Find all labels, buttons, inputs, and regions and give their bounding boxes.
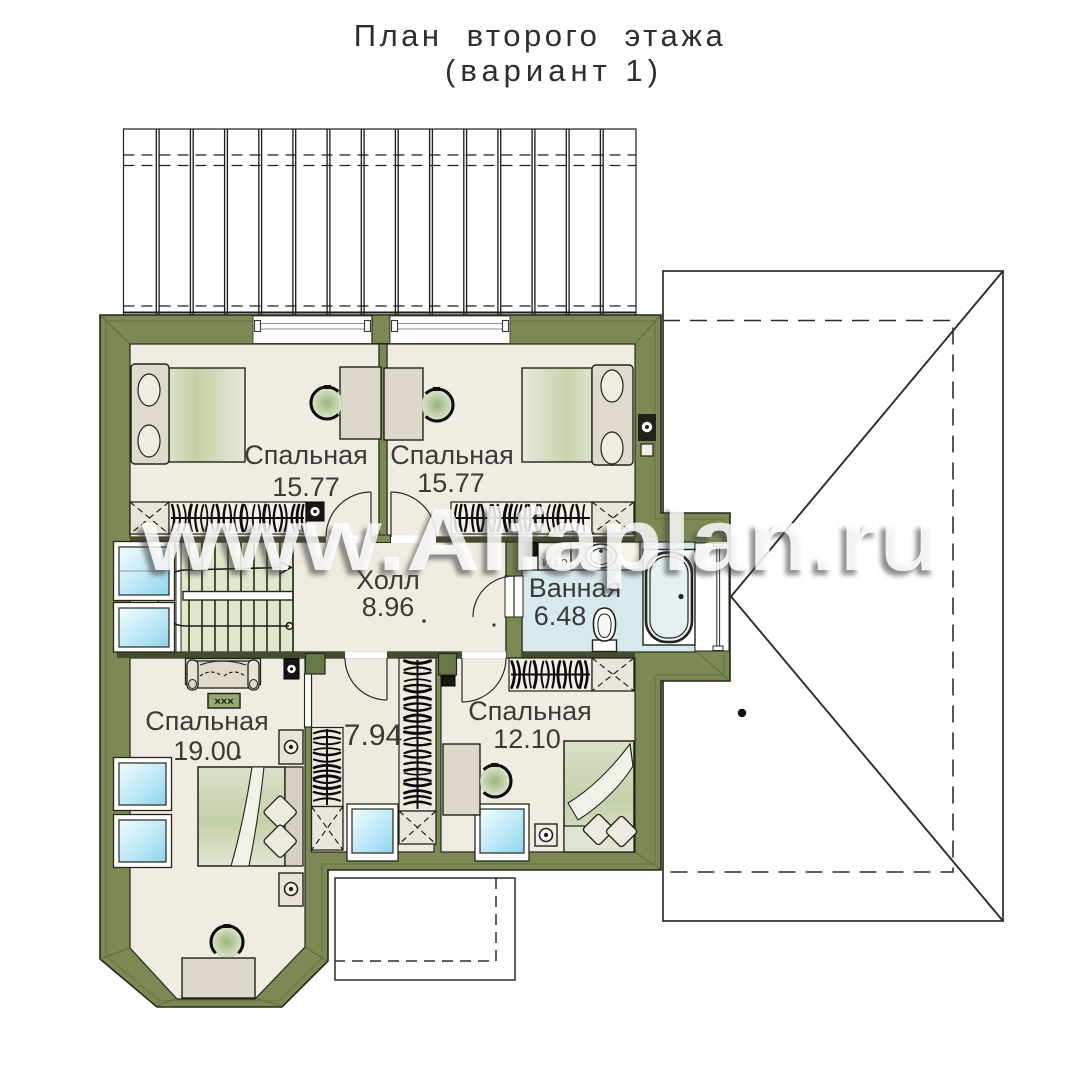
- svg-text:(вариант 1): (вариант 1): [445, 53, 663, 88]
- svg-text:19.00: 19.00: [173, 736, 241, 766]
- svg-text:Спальная: Спальная: [390, 440, 514, 470]
- svg-text:План второго этажа: План второго этажа: [354, 18, 726, 53]
- svg-text:7.94: 7.94: [344, 719, 402, 752]
- svg-text:Спальная: Спальная: [468, 696, 592, 726]
- svg-text:8.96: 8.96: [362, 592, 415, 622]
- svg-text:12.10: 12.10: [493, 724, 561, 754]
- svg-text:Спальная: Спальная: [244, 440, 368, 470]
- svg-text:www.Alfaplan.ru: www.Alfaplan.ru: [141, 490, 942, 589]
- svg-text:Спальная: Спальная: [145, 706, 269, 736]
- svg-text:6.48: 6.48: [534, 601, 587, 631]
